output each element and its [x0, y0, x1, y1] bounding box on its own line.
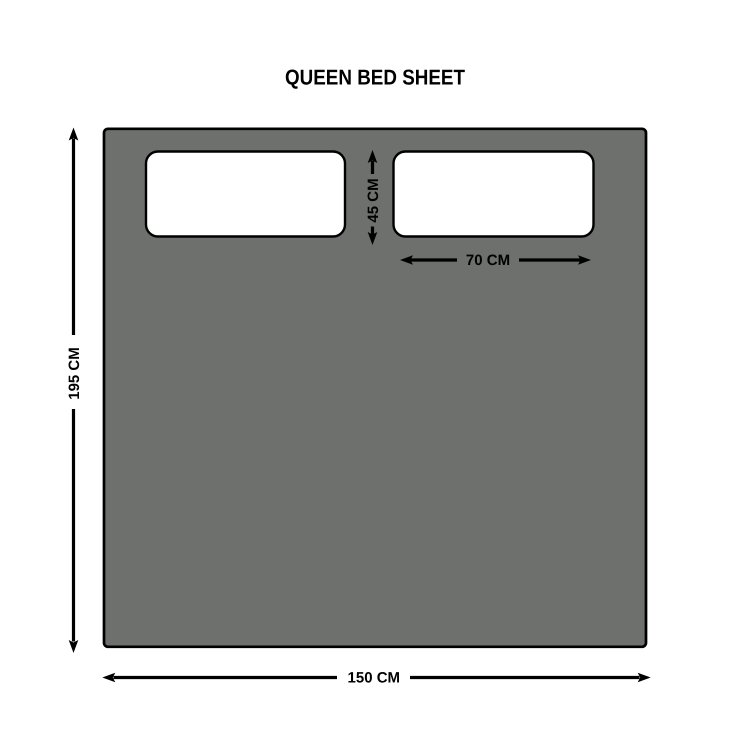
svg-text:150 CM: 150 CM: [348, 670, 401, 687]
svg-text:195 CM: 195 CM: [66, 347, 83, 400]
svg-text:QUEEN BED SHEET: QUEEN BED SHEET: [285, 66, 465, 90]
svg-text:70 CM: 70 CM: [466, 252, 510, 269]
svg-text:45 CM: 45 CM: [365, 178, 382, 222]
